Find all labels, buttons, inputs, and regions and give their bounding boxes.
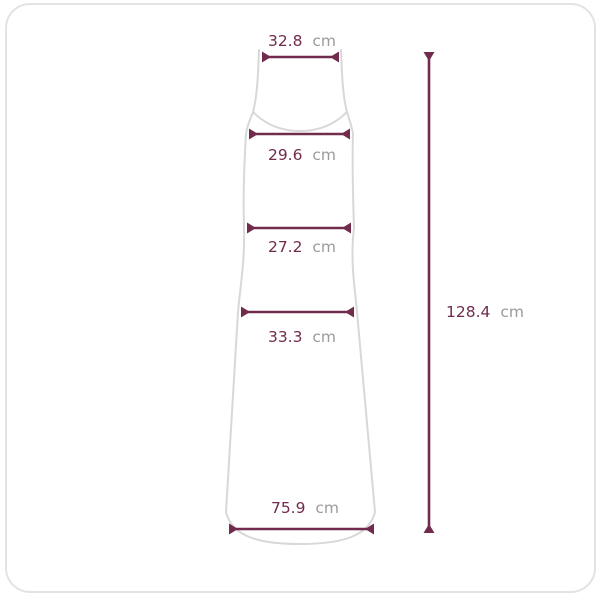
bust-width-unit: cm bbox=[312, 146, 336, 164]
bust-width-label: 29.6 cm bbox=[268, 146, 336, 164]
hip-width-label: 33.3 cm bbox=[268, 328, 336, 346]
shoulder-width-unit: cm bbox=[312, 32, 336, 50]
hip-width-value: 33.3 bbox=[268, 328, 303, 346]
arrowhead-bottom-icon bbox=[424, 524, 435, 533]
hem-width-unit: cm bbox=[315, 499, 339, 517]
shoulder-width-label: 32.8 cm bbox=[268, 32, 336, 50]
bust-width-value: 29.6 bbox=[268, 146, 303, 164]
arrowhead-top-icon bbox=[424, 52, 435, 61]
total-length-value: 128.4 bbox=[446, 303, 490, 321]
hem-width-value: 75.9 bbox=[271, 499, 306, 517]
waist-width-label: 27.2 cm bbox=[268, 238, 336, 256]
size-chart-diagram: 32.8 cm 29.6 cm 27.2 cm 33.3 cm bbox=[0, 0, 600, 600]
total-length-label: 128.4 cm bbox=[446, 303, 524, 321]
hem-width-label: 75.9 cm bbox=[271, 499, 339, 517]
hip-width-unit: cm bbox=[312, 328, 336, 346]
total-length-measure: 128.4 cm bbox=[424, 52, 524, 533]
waist-width-value: 27.2 bbox=[268, 238, 303, 256]
dress-outline bbox=[226, 50, 375, 544]
shoulder-width-measure: 32.8 cm bbox=[262, 32, 339, 63]
dress-silhouette bbox=[226, 50, 375, 544]
size-chart-panel: 32.8 cm 29.6 cm 27.2 cm 33.3 cm bbox=[0, 0, 600, 600]
total-length-unit: cm bbox=[500, 303, 524, 321]
waist-width-unit: cm bbox=[312, 238, 336, 256]
shoulder-width-value: 32.8 bbox=[268, 32, 303, 50]
